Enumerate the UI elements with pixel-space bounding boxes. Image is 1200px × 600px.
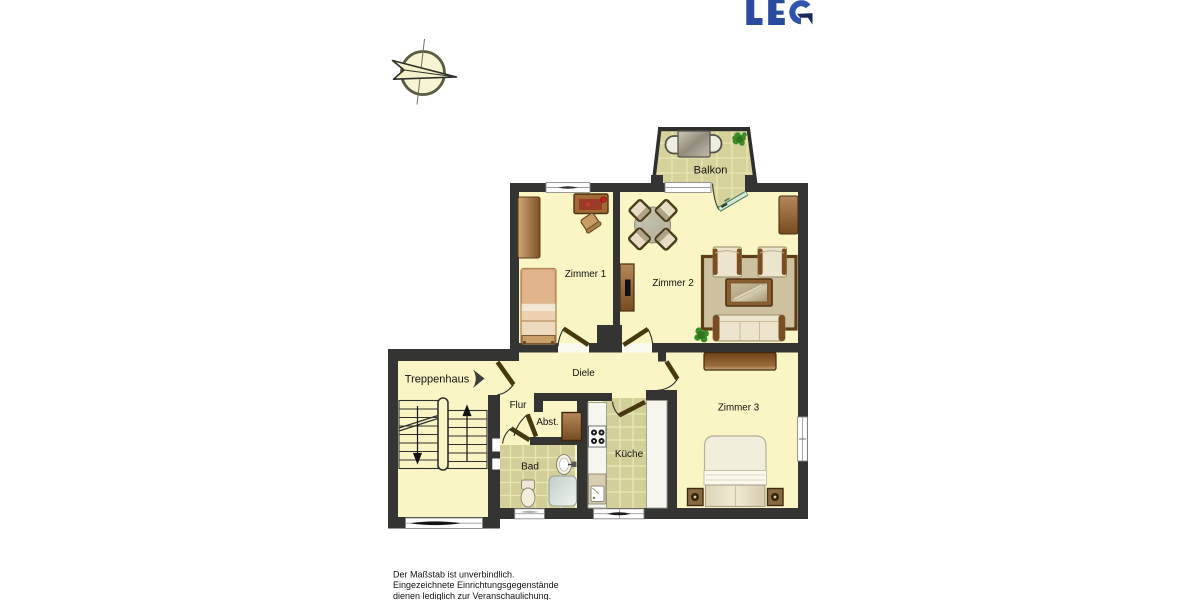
svg-text:Flur: Flur xyxy=(510,400,528,411)
svg-text:Bad: Bad xyxy=(521,462,539,473)
svg-text:Der Maßstab ist unverbindlich.: Der Maßstab ist unverbindlich. xyxy=(393,570,515,580)
svg-text:dienen lediglich zur Veranscha: dienen lediglich zur Veranschaulichung. xyxy=(393,591,551,600)
svg-text:Balkon: Balkon xyxy=(694,165,728,177)
svg-text:Abst.: Abst. xyxy=(536,417,558,428)
svg-text:Eingezeichnete Einrichtungsgeg: Eingezeichnete Einrichtungsgegenstände xyxy=(393,580,559,590)
svg-text:Treppenhaus: Treppenhaus xyxy=(405,374,470,386)
svg-text:Diele: Diele xyxy=(572,368,595,379)
svg-text:Zimmer 3: Zimmer 3 xyxy=(718,403,760,414)
svg-text:Zimmer 1: Zimmer 1 xyxy=(565,269,606,280)
svg-text:Zimmer 2: Zimmer 2 xyxy=(652,278,693,289)
svg-text:Küche: Küche xyxy=(615,449,644,460)
